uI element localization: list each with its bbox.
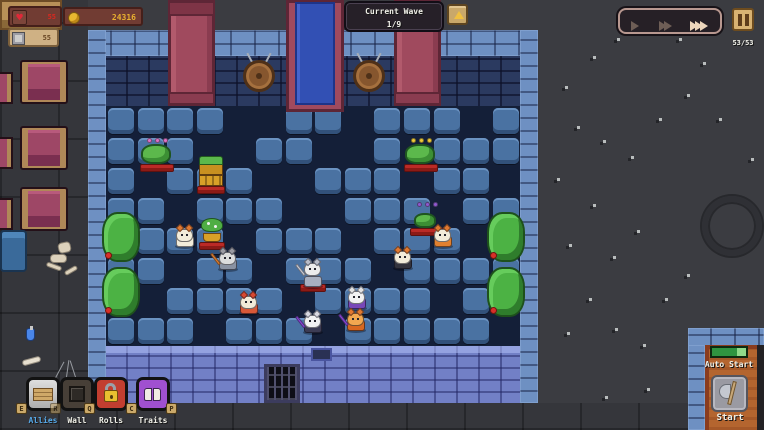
auto-start-progress[interactable] bbox=[710, 346, 748, 358]
gold-value: 24316 bbox=[112, 13, 136, 22]
hotkey-badge-rolls: Q bbox=[84, 403, 95, 414]
book-icon bbox=[144, 388, 152, 401]
auto-start-label: Auto Start bbox=[697, 360, 761, 369]
unit-blossom-blob bbox=[140, 136, 174, 172]
unit-pumpkin-cat[interactable] bbox=[343, 308, 369, 336]
speed-controls bbox=[618, 8, 722, 34]
unit-fox-b[interactable] bbox=[390, 246, 416, 274]
unit-gift-crates bbox=[197, 148, 225, 194]
game-screen: Auto Start Start ♥ 55 24316 55 Current W… bbox=[0, 0, 764, 430]
start-label: Start bbox=[704, 413, 756, 423]
wave-badge: Current Wave 1/9 bbox=[344, 1, 444, 32]
unit-red-cat[interactable] bbox=[236, 291, 262, 319]
pause-icon bbox=[734, 10, 752, 29]
wave-value: 1/9 bbox=[346, 20, 442, 29]
unit-fox-tail[interactable] bbox=[430, 224, 456, 252]
hp-bar: ♥ 55 bbox=[8, 6, 62, 27]
hotkey-badge-allies: E bbox=[16, 403, 27, 414]
bush-right-bottom bbox=[487, 267, 525, 317]
pause-button[interactable] bbox=[732, 8, 754, 31]
bush-left-top bbox=[102, 212, 140, 262]
unit-fox-scout[interactable] bbox=[172, 224, 198, 252]
entrance-shadow bbox=[757, 345, 764, 430]
rolls-label: Rolls bbox=[89, 416, 133, 425]
unit-count: 53/53 bbox=[726, 39, 760, 47]
chevron-up-icon bbox=[454, 11, 464, 19]
capacity-value: 55 bbox=[43, 34, 51, 42]
play-button[interactable] bbox=[631, 16, 636, 28]
hotkey-badge-wall: R bbox=[50, 403, 61, 414]
heart-icon: ♥ bbox=[12, 10, 27, 25]
wave-up-button[interactable] bbox=[447, 4, 468, 25]
unit-grey-cat[interactable] bbox=[215, 247, 241, 275]
bush-left-bottom bbox=[102, 267, 140, 317]
hotkey-badge-traits: C bbox=[126, 403, 137, 414]
unit-potted-sprout bbox=[199, 216, 225, 250]
fastest-forward-button[interactable] bbox=[690, 16, 705, 28]
fast-forward-button[interactable] bbox=[659, 16, 669, 28]
traits-button[interactable] bbox=[136, 377, 170, 411]
scroll-icon bbox=[33, 388, 53, 401]
gold-bar: 24316 bbox=[63, 7, 143, 26]
corner-wall-left bbox=[688, 345, 705, 430]
rolls-button[interactable] bbox=[94, 377, 128, 411]
bush-right-top bbox=[487, 212, 525, 262]
capacity-bar: 55 bbox=[8, 28, 59, 47]
traits-label: Traits bbox=[131, 416, 175, 425]
unit-coin-blob bbox=[404, 136, 438, 172]
unit-knight-cat[interactable] bbox=[300, 258, 326, 292]
start-button[interactable] bbox=[711, 375, 748, 412]
coin-icon bbox=[68, 12, 80, 24]
wall-icon bbox=[69, 386, 85, 402]
hp-value: 55 bbox=[48, 13, 56, 21]
hotkey-badge-traits-2: P bbox=[166, 403, 177, 414]
wave-label: Current Wave bbox=[346, 7, 442, 16]
unit-slot-icon bbox=[12, 32, 25, 45]
unit-blade-cat[interactable] bbox=[300, 310, 326, 338]
